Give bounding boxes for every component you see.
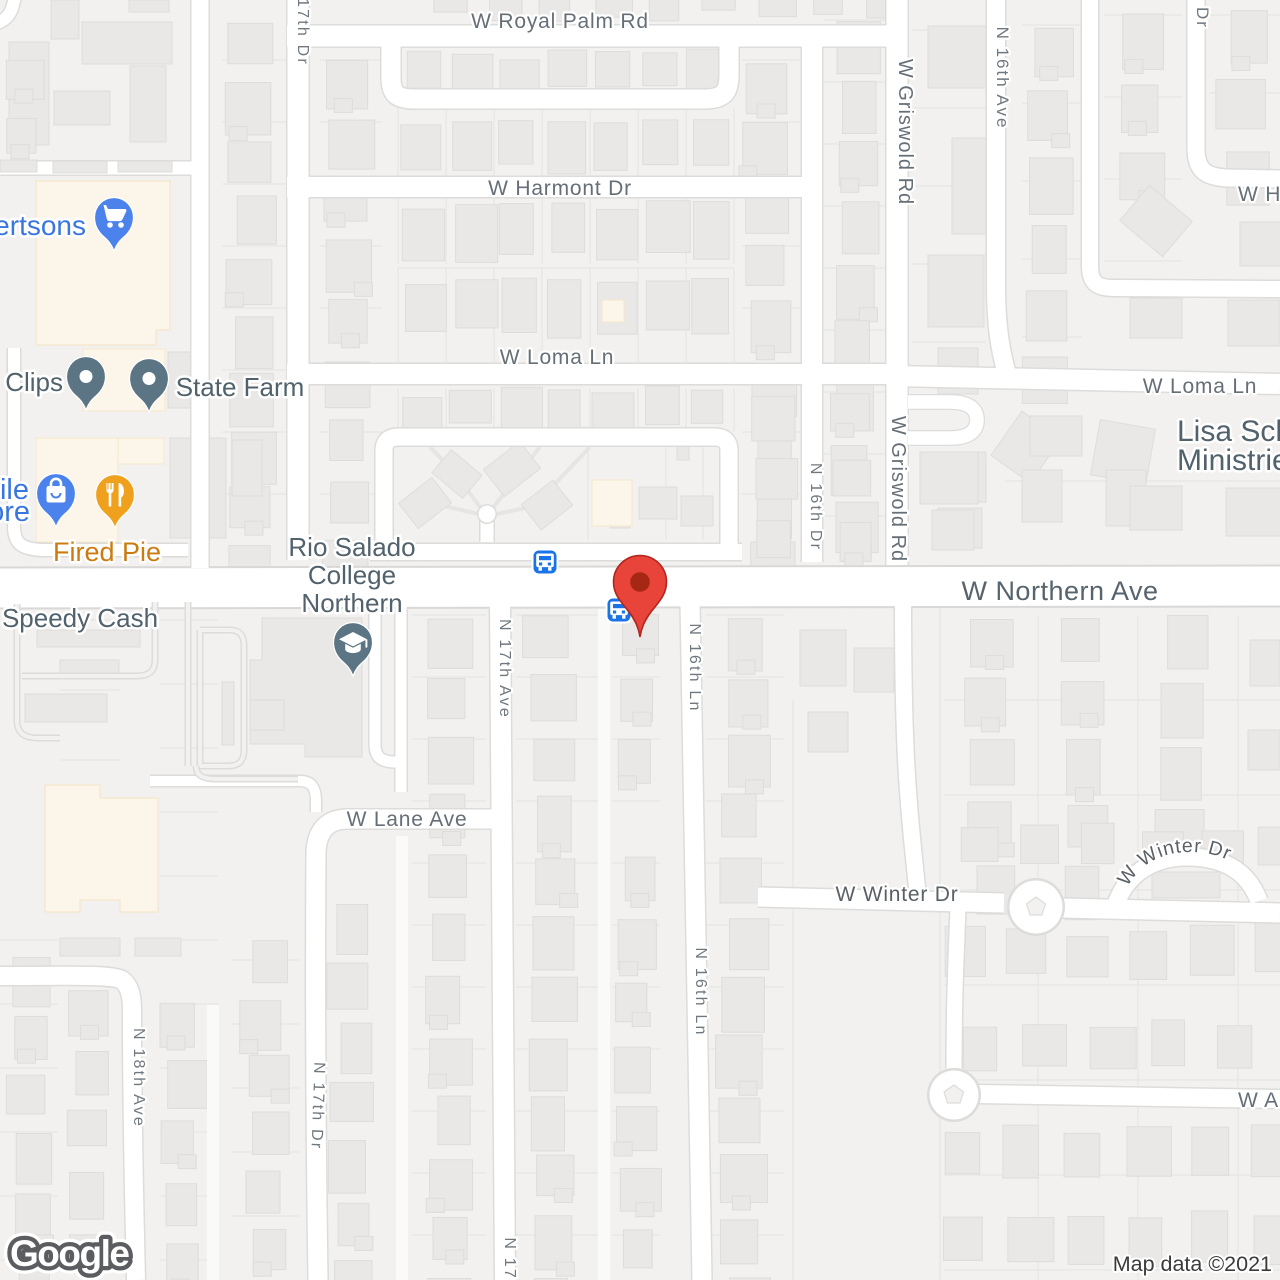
svg-text:Rio Salado: Rio Salado: [288, 532, 415, 562]
svg-text:Clips: Clips: [5, 367, 63, 397]
svg-text:W Ha: W Ha: [1238, 183, 1280, 206]
svg-text:W Royal Palm Rd: W Royal Palm Rd: [471, 10, 649, 33]
svg-text:N 16th Ln: N 16th Ln: [686, 623, 703, 712]
svg-text:W Harmont Dr: W Harmont Dr: [488, 177, 632, 200]
svg-text:N 16th Dr: N 16th Dr: [807, 463, 824, 551]
svg-text:Dr: Dr: [1193, 7, 1212, 29]
svg-text:College: College: [308, 560, 396, 590]
svg-text:Northern: Northern: [301, 588, 402, 618]
svg-text:W Loma Ln: W Loma Ln: [1143, 375, 1258, 398]
svg-text:N 16th Ln: N 16th Ln: [692, 947, 709, 1036]
svg-text:ertsons: ertsons: [0, 210, 86, 241]
svg-text:Speedy Cash: Speedy Cash: [2, 603, 158, 633]
svg-text:Fired Pie: Fired Pie: [53, 537, 161, 567]
svg-text:Ministrie: Ministrie: [1177, 444, 1280, 477]
svg-text:W Lane Ave: W Lane Ave: [347, 808, 468, 831]
svg-text:W Griswold Rd: W Griswold Rd: [887, 416, 909, 562]
svg-text:W Griswold Rd: W Griswold Rd: [894, 59, 916, 205]
svg-text:W Loma Ln: W Loma Ln: [500, 346, 615, 369]
svg-text:Google: Google: [10, 1233, 129, 1274]
svg-text:N 18th Ave: N 18th Ave: [130, 1028, 147, 1128]
svg-text:N 17th Ave: N 17th Ave: [496, 619, 513, 719]
svg-text:W Au: W Au: [1238, 1089, 1280, 1112]
svg-text:W Northern Ave: W Northern Ave: [961, 576, 1158, 606]
svg-text:State Farm: State Farm: [176, 372, 305, 402]
svg-text:17th Dr: 17th Dr: [294, 0, 311, 66]
svg-text:N 17th Dr: N 17th Dr: [307, 1062, 327, 1151]
svg-text:ore: ore: [0, 496, 30, 528]
svg-text:N 16th Ave: N 16th Ave: [993, 27, 1012, 130]
svg-text:N 17t: N 17t: [501, 1237, 518, 1280]
svg-text:Map data ©2021: Map data ©2021: [1113, 1252, 1272, 1276]
svg-text:W Winter Dr: W Winter Dr: [835, 883, 958, 906]
